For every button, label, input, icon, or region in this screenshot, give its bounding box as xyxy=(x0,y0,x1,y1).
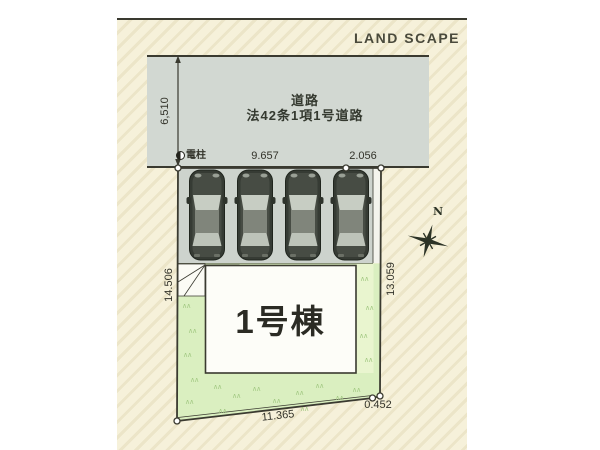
grass-mark: ∧∧ xyxy=(232,393,240,400)
car-2 xyxy=(235,170,276,260)
grass-mark: ∧∧ xyxy=(315,383,323,390)
car-1 xyxy=(187,170,228,260)
dim-bottom-right: 0.452 xyxy=(364,399,392,411)
plot-canvas xyxy=(0,0,600,450)
dim-road-width: 6,510 xyxy=(159,97,171,125)
building-label: 1号棟 xyxy=(205,265,356,373)
grass-mark: ∧∧ xyxy=(218,408,226,415)
grass-mark: ∧∧ xyxy=(188,328,196,335)
utility-pole-icon xyxy=(176,151,185,160)
grass-mark: ∧∧ xyxy=(190,377,198,384)
grass-mark: ∧∧ xyxy=(364,357,372,364)
dim-top-left: 9.657 xyxy=(251,150,279,162)
grass-mark: ∧∧ xyxy=(360,276,368,283)
grass-mark: ∧∧ xyxy=(335,395,343,402)
dim-left: 14.506 xyxy=(163,268,175,302)
approach-area xyxy=(178,264,205,296)
car-3 xyxy=(283,170,324,260)
utility-pole-label: 電柱 xyxy=(186,146,206,161)
grass-mark: ∧∧ xyxy=(252,386,260,393)
grass-mark: ∧∧ xyxy=(359,333,367,340)
compass-rose-icon xyxy=(403,219,452,263)
site-plan: LAND SCAPE 道路 法42条1項1号道路 xyxy=(0,0,600,450)
dim-right: 13.059 xyxy=(385,262,397,296)
grass-mark: ∧∧ xyxy=(183,352,191,359)
grass-mark: ∧∧ xyxy=(352,387,360,394)
grass-mark: ∧∧ xyxy=(213,384,221,391)
road-width-dim-line xyxy=(175,56,181,167)
compass-north-label: N xyxy=(433,205,443,218)
car-4 xyxy=(331,170,372,260)
grass-mark: ∧∧ xyxy=(185,399,193,406)
grass-mark: ∧∧ xyxy=(300,406,308,413)
grass-mark: ∧∧ xyxy=(272,398,280,405)
grass-mark: ∧∧ xyxy=(182,303,190,310)
dim-top-right: 2.056 xyxy=(349,150,377,162)
grass-mark: ∧∧ xyxy=(365,305,373,312)
grass-mark: ∧∧ xyxy=(295,390,303,397)
